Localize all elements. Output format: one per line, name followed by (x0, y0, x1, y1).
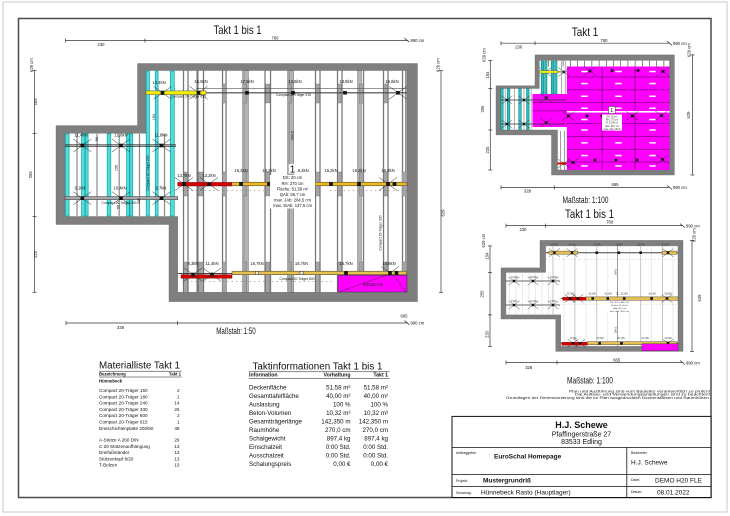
svg-text:100 %: 100 % (333, 401, 351, 408)
svg-text:11,4kN: 11,4kN (75, 133, 88, 138)
svg-text:255: 255 (480, 105, 485, 113)
svg-text:12,6kN: 12,6kN (529, 277, 537, 279)
svg-text:17,8kN: 17,8kN (593, 244, 601, 246)
svg-text:Materialliste Takt 1: Materialliste Takt 1 (99, 361, 180, 372)
svg-text:2: 2 (177, 388, 180, 393)
svg-text:QAb: 66,7 cm: QAb: 66,7 cm (613, 307, 627, 310)
svg-text:EuroSchal Homepage: EuroSchal Homepage (494, 454, 562, 461)
svg-text:328: 328 (524, 189, 532, 194)
svg-text:270,0 cm: 270,0 cm (363, 427, 388, 434)
svg-text:max. JAb: 264,5 cm: max. JAb: 264,5 cm (610, 310, 630, 313)
svg-text:1: 1 (290, 165, 296, 176)
svg-text:264,5: 264,5 (290, 131, 294, 141)
svg-text:Schalungspreis: Schalungspreis (249, 461, 291, 468)
svg-text:1: 1 (177, 394, 180, 399)
svg-text:328: 328 (525, 365, 533, 370)
svg-text:230: 230 (520, 227, 528, 232)
svg-text:DS: 20 cm RH: 270: DS: 20 cm RH: 270 (610, 302, 630, 304)
svg-text:15,8kN: 15,8kN (385, 79, 398, 84)
svg-text:665: 665 (613, 358, 621, 363)
svg-text:155: 155 (115, 165, 119, 171)
svg-text:990 cm: 990 cm (686, 361, 700, 366)
svg-text:max. JAb: 264,5: max. JAb: 264,5 (604, 128, 621, 131)
svg-text:13: 13 (174, 456, 180, 461)
svg-text:Beton-Volumen: Beton-Volumen (249, 410, 292, 417)
svg-text:16,7kN: 16,7kN (596, 338, 604, 340)
svg-text:Fl: 51,58 m²: Fl: 51,58 m² (606, 122, 618, 125)
svg-text:16,2kN: 16,2kN (262, 168, 275, 173)
svg-text:Compact 20-Träger 240: Compact 20-Träger 240 (99, 401, 148, 406)
svg-text:Deckenfläche: Deckenfläche (249, 384, 287, 391)
svg-text:Raumhöhe: Raumhöhe (249, 427, 280, 434)
svg-text:16,2kN: 16,2kN (295, 168, 308, 173)
svg-text:154: 154 (152, 114, 156, 120)
svg-text:629 cm: 629 cm (482, 48, 487, 62)
svg-text:13,4kN: 13,4kN (152, 80, 165, 85)
svg-text:Mustergrundriß: Mustergrundriß (483, 477, 531, 484)
svg-text:10,32 m³: 10,32 m³ (364, 410, 388, 417)
svg-text:26: 26 (174, 407, 180, 412)
svg-text:15,8kN: 15,8kN (664, 293, 672, 295)
svg-text:H.J. Schewe: H.J. Schewe (555, 420, 608, 430)
svg-text:Maßstab: 1:50: Maßstab: 1:50 (216, 326, 256, 336)
svg-text:Compact 20-Träger 600: Compact 20-Träger 600 (280, 277, 315, 281)
svg-text:13,4kN: 13,4kN (550, 244, 558, 246)
svg-text:Compact 20-Träger 615: Compact 20-Träger 615 (99, 420, 148, 425)
svg-text:629: 629 (697, 294, 702, 302)
svg-text:16,2kN: 16,2kN (604, 293, 612, 295)
svg-text:990 cm: 990 cm (686, 224, 700, 229)
svg-text:Gesamttafelfläche: Gesamttafelfläche (249, 393, 299, 400)
svg-text:142,350 m: 142,350 m (359, 418, 388, 425)
svg-text:154: 154 (485, 71, 490, 79)
svg-text:Grundlagen der Dimensionierung: Grundlagen der Dimensionierung sind die … (506, 396, 710, 400)
svg-text:Einschalzeit: Einschalzeit (249, 444, 282, 451)
svg-text:A-Stütze A 260 DIN: A-Stütze A 260 DIN (99, 438, 139, 443)
svg-text:270,0 cm: 270,0 cm (325, 427, 350, 434)
svg-text:14,8kN: 14,8kN (382, 261, 395, 266)
svg-text:100 %: 100 % (370, 401, 388, 408)
svg-text:H.J. Schewe: H.J. Schewe (631, 460, 668, 467)
svg-text:629 cm: 629 cm (687, 43, 692, 57)
svg-text:max. StAb: 137,6 cm: max. StAb: 137,6 cm (273, 203, 312, 208)
svg-text:Bezeichnung: Bezeichnung (99, 371, 126, 376)
svg-text:51,58 m²: 51,58 m² (364, 384, 388, 391)
svg-text:220: 220 (33, 250, 38, 258)
svg-text:Projekt:: Projekt: (456, 479, 468, 483)
svg-text:990 cm: 990 cm (673, 185, 687, 190)
svg-text:16,0kN: 16,0kN (568, 244, 576, 246)
svg-text:Fläche: 51,58 m²: Fläche: 51,58 m² (277, 186, 309, 191)
svg-text:9,7kN: 9,7kN (156, 186, 167, 191)
svg-text:9,1kN: 9,1kN (75, 186, 86, 191)
svg-text:13: 13 (174, 450, 180, 455)
svg-text:154: 154 (33, 98, 38, 106)
svg-text:12,6kN: 12,6kN (114, 133, 127, 138)
svg-text:Maßstab: 1:100: Maßstab: 1:100 (567, 376, 613, 386)
svg-text:142,350 m: 142,350 m (321, 418, 350, 425)
svg-text:Information: Information (249, 373, 278, 379)
svg-text:200x50 cm: 200x50 cm (363, 282, 384, 287)
svg-text:16,0kN: 16,0kN (194, 79, 207, 84)
svg-text:Bearbeiter: Bearbeiter (631, 451, 648, 455)
svg-text:DS: 20 cm: DS: 20 cm (607, 116, 618, 118)
svg-text:Auslastung: Auslastung (249, 401, 280, 408)
svg-text:220: 220 (485, 146, 490, 154)
svg-text:Compact 20-Träger 215: Compact 20-Träger 215 (276, 93, 311, 97)
svg-text:9,7kN: 9,7kN (550, 301, 556, 303)
svg-text:40,00 m²: 40,00 m² (364, 393, 388, 400)
svg-text:Compact 20-Träger 330: Compact 20-Träger 330 (379, 215, 383, 250)
svg-text:Compact 20-Träger 240: Compact 20-Träger 240 (146, 155, 150, 190)
svg-text:1: 1 (177, 420, 180, 425)
svg-text:Takt 1: Takt 1 (169, 371, 182, 376)
svg-text:897,4 kg: 897,4 kg (364, 435, 388, 442)
svg-text:Vorhaltung: Vorhaltung (324, 373, 351, 379)
svg-text:13: 13 (174, 444, 180, 449)
svg-text:760: 760 (272, 35, 280, 40)
svg-text:9,1kN: 9,1kN (511, 301, 517, 303)
svg-text:13,8kN: 13,8kN (637, 244, 645, 246)
svg-text:897,4 kg: 897,4 kg (327, 435, 351, 442)
svg-text:220: 220 (485, 330, 490, 338)
svg-text:13,7kN: 13,7kN (177, 173, 190, 178)
svg-text:16,7kN: 16,7kN (295, 261, 308, 266)
svg-text:48: 48 (174, 426, 180, 431)
svg-text:11,4kN: 11,4kN (206, 261, 219, 266)
svg-text:629 cm: 629 cm (436, 58, 441, 72)
svg-text:629 cm: 629 cm (692, 228, 697, 242)
svg-text:Compact 20-Träger 330: Compact 20-Träger 330 (102, 201, 137, 205)
svg-text:Datei:: Datei: (631, 478, 640, 482)
svg-text:16,7kN: 16,7kN (250, 261, 263, 266)
svg-text:629 cm: 629 cm (29, 58, 34, 72)
svg-text:Ausschalzeit: Ausschalzeit (249, 452, 284, 459)
svg-text:16,2kN: 16,2kN (620, 293, 628, 295)
svg-text:0,00 €: 0,00 € (333, 461, 351, 468)
svg-text:760: 760 (606, 219, 614, 224)
svg-text:9,3kN: 9,3kN (188, 261, 199, 266)
svg-text:665: 665 (401, 314, 409, 319)
svg-text:Takt 1 bis 1: Takt 1 bis 1 (214, 23, 262, 37)
svg-text:17,8kN: 17,8kN (240, 79, 253, 84)
svg-text:11,8kN: 11,8kN (549, 277, 556, 279)
svg-text:Maßstab: 1:100: Maßstab: 1:100 (563, 195, 609, 205)
svg-text:13: 13 (174, 463, 180, 468)
svg-text:Pfaffingerstraße 27: Pfaffingerstraße 27 (552, 432, 612, 439)
svg-text:16,2kN: 16,2kN (234, 168, 247, 173)
svg-text:Dreifußständer: Dreifußständer (99, 450, 130, 455)
svg-text:Takt 1: Takt 1 (373, 373, 388, 379)
svg-text:665: 665 (612, 182, 620, 187)
svg-text:Datum:: Datum: (631, 490, 642, 494)
svg-text:Compact 20-Träger 600: Compact 20-Träger 600 (99, 413, 148, 418)
svg-text:10,32 m³: 10,32 m³ (326, 410, 350, 417)
svg-text:13,8kN: 13,8kN (615, 244, 623, 246)
svg-text:RH: 270 cm: RH: 270 cm (281, 181, 304, 186)
svg-text:0:00 Std.: 0:00 Std. (363, 444, 388, 451)
svg-text:10,4kN: 10,4kN (113, 186, 126, 191)
svg-text:Compact 20-Träger 180: Compact 20-Träger 180 (99, 394, 148, 399)
svg-text:16,2kN: 16,2kN (352, 168, 365, 173)
svg-text:40,00 m²: 40,00 m² (326, 393, 350, 400)
svg-text:0,00 €: 0,00 € (371, 461, 389, 468)
svg-text:DS: 20 cm: DS: 20 cm (283, 175, 303, 180)
svg-text:154: 154 (485, 252, 490, 260)
svg-text:0:00 Std.: 0:00 Std. (363, 452, 388, 459)
svg-text:Compact 20-Träger 150: Compact 20-Träger 150 (99, 388, 148, 393)
svg-text:QAb: 66,7 cm: QAb: 66,7 cm (605, 125, 619, 128)
svg-text:13,8kN: 13,8kN (288, 79, 301, 84)
svg-text:16,2kN: 16,2kN (324, 168, 337, 173)
svg-text:51,58 m²: 51,58 m² (326, 384, 350, 391)
svg-text:Auftraggeber: Auftraggeber (456, 451, 477, 455)
svg-text:16,2kN: 16,2kN (648, 293, 656, 295)
svg-text:16,7kN: 16,7kN (339, 261, 352, 266)
svg-text:0:00 Std.: 0:00 Std. (326, 452, 351, 459)
svg-text:629: 629 (441, 209, 446, 217)
svg-text:Taktinformationen Takt 1 bis: Taktinformationen Takt 1 bis 1 (253, 362, 383, 373)
svg-text:255: 255 (28, 171, 33, 179)
svg-text:50: 50 (95, 137, 99, 141)
svg-text:0:00 Std.: 0:00 Std. (326, 444, 351, 451)
svg-text:Dreischichtenplatte 200/50: Dreischichtenplatte 200/50 (99, 426, 154, 431)
svg-text:230: 230 (98, 42, 106, 47)
svg-text:11,8kN: 11,8kN (155, 133, 168, 138)
svg-text:629: 629 (686, 111, 691, 119)
svg-text:1: 1 (610, 108, 613, 114)
svg-text:14,8kN: 14,8kN (664, 338, 672, 340)
svg-text:C 20 Stützenaufhängung: C 20 Stützenaufhängung (99, 444, 150, 449)
svg-text:Schalung:: Schalung: (456, 491, 472, 495)
svg-text:264,5: 264,5 (615, 268, 618, 275)
svg-text:11,4kN: 11,4kN (569, 338, 576, 340)
svg-text:Schalgewicht: Schalgewicht (249, 435, 286, 442)
svg-text:QAb: 66,7 cm: QAb: 66,7 cm (280, 192, 306, 197)
svg-text:14: 14 (174, 401, 180, 406)
svg-text:max. JAb: 264,5 cm: max. JAb: 264,5 cm (274, 198, 312, 203)
svg-text:990 cm: 990 cm (673, 41, 687, 46)
svg-text:13,2kN: 13,2kN (202, 173, 215, 178)
svg-text:990 cm: 990 cm (411, 38, 425, 43)
svg-text:DEMO H20 FLE: DEMO H20 FLE (655, 477, 703, 484)
svg-text:16,2kN: 16,2kN (588, 293, 596, 295)
svg-text:16,7kN: 16,7kN (641, 338, 649, 340)
svg-text:264,5: 264,5 (615, 326, 618, 333)
svg-text:Compact 20-Träger 330: Compact 20-Träger 330 (99, 407, 148, 412)
svg-text:336: 336 (137, 198, 141, 204)
svg-text:Compact 20-Träger 615: Compact 20-Träger 615 (171, 94, 206, 98)
svg-text:629 cm: 629 cm (481, 233, 486, 247)
svg-text:83533 Edling: 83533 Edling (561, 439, 602, 446)
svg-text:Stützenkopf 8/20: Stützenkopf 8/20 (99, 456, 134, 461)
svg-text:Takt 1: Takt 1 (572, 25, 599, 39)
svg-text:26: 26 (174, 438, 180, 443)
svg-text:Hünnebeck Rasto (Hauptlager): Hünnebeck Rasto (Hauptlager) (481, 489, 571, 496)
svg-text:13,7kN: 13,7kN (566, 293, 574, 295)
svg-text:Hünnebeck: Hünnebeck (99, 378, 123, 383)
svg-text:Gesamtträgerlänge: Gesamtträgerlänge (249, 418, 303, 425)
svg-text:13,8kN: 13,8kN (339, 79, 352, 84)
svg-text:08.01.2022: 08.01.2022 (657, 489, 690, 496)
svg-text:15,8kN: 15,8kN (381, 168, 394, 173)
svg-text:10,4kN: 10,4kN (529, 301, 537, 303)
svg-text:2: 2 (177, 413, 180, 418)
svg-text:16,7kN: 16,7kN (617, 338, 625, 340)
svg-text:Fläche: 51,58 m²: Fläche: 51,58 m² (611, 304, 628, 307)
svg-text:990 cm: 990 cm (411, 321, 425, 326)
svg-text:T-Bolzen: T-Bolzen (99, 463, 118, 468)
svg-text:255: 255 (480, 290, 485, 298)
svg-text:760: 760 (601, 38, 609, 43)
svg-text:328: 328 (117, 325, 125, 330)
svg-text:230: 230 (515, 45, 523, 50)
svg-text:50: 50 (117, 205, 121, 209)
svg-text:11,4kN: 11,4kN (510, 277, 517, 279)
svg-text:RH: 270 cm: RH: 270 cm (606, 120, 618, 122)
svg-text:15,8kN: 15,8kN (661, 244, 669, 246)
